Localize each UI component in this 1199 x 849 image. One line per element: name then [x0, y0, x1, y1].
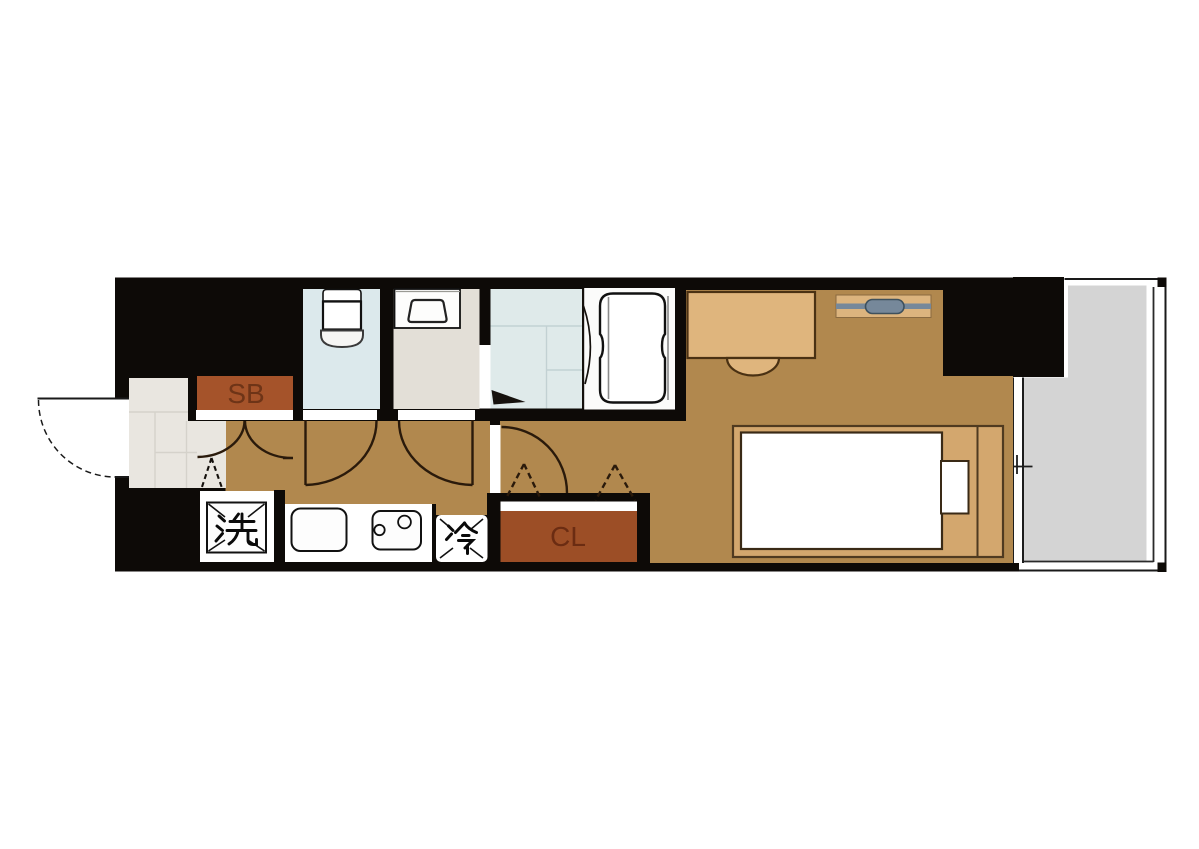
- svg-text:SB: SB: [227, 378, 264, 409]
- svg-text:CL: CL: [550, 521, 586, 552]
